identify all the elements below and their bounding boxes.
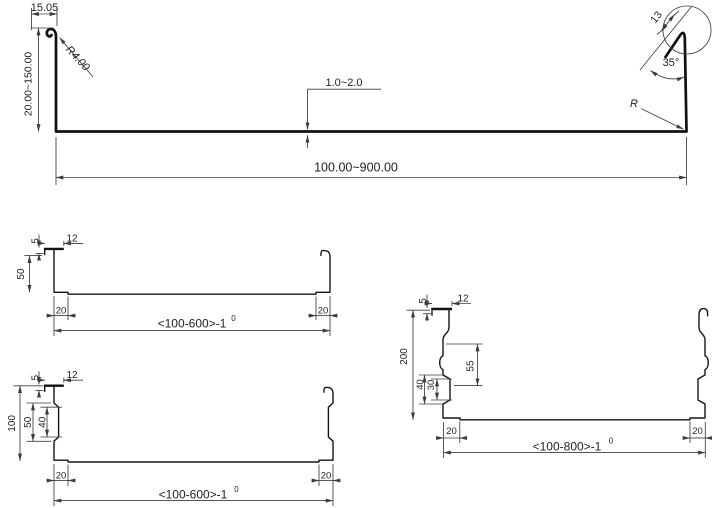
dim-c-width-tolerance: 0 [609,437,614,446]
dim-a-height-label: 50 [16,268,27,280]
dim-height-range-label: 20.00~150.00 [23,52,35,117]
dim-a-lip-return-label: 5 [31,238,42,244]
channel-50-drawing: 5 12 50 20 20 [16,234,338,337]
dim-c-width-label: <100-800>-1 [533,440,602,454]
dim-c-lip-return-label: 5 [418,298,429,304]
dim-c-foot-left-label: 20 [446,426,457,437]
dim-b-lip-width: 12 [41,370,84,383]
dim-hook-width: 15.05 [31,2,59,30]
dim-c-width: <100-800>-1 0 [444,437,706,454]
dim-b-foot-left-label: 20 [56,470,67,481]
main-profile-outline [47,29,687,132]
dim-c-lip-return: 5 [418,295,431,319]
dim-b-lip-return-label: 5 [31,374,42,380]
dim-a-width-label: <100-600>-1 [158,317,227,331]
dim-b-height-label: 100 [7,415,18,432]
technical-drawing-page: 15.05 20.00~150.00 R4.00 1.0~2.0 100.00~… [0,0,712,508]
dim-c-rib-inner: 30 [426,379,452,400]
dim-c-height-label: 200 [399,348,410,365]
dim-c-rib-inner-label: 30 [426,380,437,391]
dim-lip-detail: 13 35° R [630,6,711,129]
dim-a-width: <100-600>-1 0 [54,314,330,331]
dim-b-lip-width-label: 12 [66,370,78,381]
dim-width-range-label: 100.00~900.00 [314,160,398,174]
dim-c-rib-spacing-label: 55 [466,360,477,372]
dim-a-lip-width-label: 12 [66,234,78,245]
dim-b-foot-right: 20 [312,464,341,506]
dim-b-width: <100-600>-1 0 [54,485,333,502]
dim-c-height: 200 [399,310,430,420]
detail-circle [663,6,711,54]
cad-drawing-canvas: 15.05 20.00~150.00 R4.00 1.0~2.0 100.00~… [0,0,712,508]
dim-thickness-range: 1.0~2.0 [308,77,382,148]
dim-c-foot-right-label: 20 [692,426,703,437]
dim-thickness-range-label: 1.0~2.0 [325,77,362,89]
dim-b-rib-inner-label: 40 [38,416,49,428]
dim-a-foot-left: 20 [47,296,76,336]
dim-corner-radius-label: R [630,98,638,110]
dim-b-width-label: <100-600>-1 [159,488,228,502]
channel-100-outline [45,387,333,462]
dim-b-lip-return: 5 [31,371,44,395]
dim-lip-length-label: 13 [648,9,665,26]
dim-b-foot-right-label: 20 [321,470,332,481]
dim-height-range: 20.00~150.00 [23,28,53,132]
dim-c-rib-outer-label: 40 [415,379,426,390]
dim-a-width-tolerance: 0 [231,314,236,323]
dim-a-foot-right: 20 [309,296,338,336]
dim-a-foot-left-label: 20 [56,305,67,316]
dim-lip-angle-label: 35° [663,57,680,69]
dim-b-foot-left: 20 [47,464,76,506]
dim-a-height: 50 [16,256,42,293]
dim-width-range: 100.00~900.00 [56,137,687,185]
dim-a-lip-width: 12 [41,234,84,247]
main-profile-drawing: 15.05 20.00~150.00 R4.00 1.0~2.0 100.00~… [23,2,711,185]
dim-hook-radius-label: R4.00 [63,44,92,74]
dim-c-lip-width-label: 12 [457,294,469,305]
dim-hook-width-label: 15.05 [31,2,59,14]
channel-100-drawing: 5 12 100 50 40 [7,370,341,506]
dim-hook-radius: R4.00 [60,38,94,78]
channel-200-drawing: 5 12 200 55 40 [399,294,712,459]
channel-50-outline [45,250,330,294]
dim-b-rib-outer-label: 50 [23,416,34,428]
dim-a-foot-right-label: 20 [318,305,329,316]
dim-c-lip-width: 12 [428,294,471,307]
dim-a-lip-return: 5 [31,235,44,259]
dim-b-width-tolerance: 0 [234,485,239,494]
